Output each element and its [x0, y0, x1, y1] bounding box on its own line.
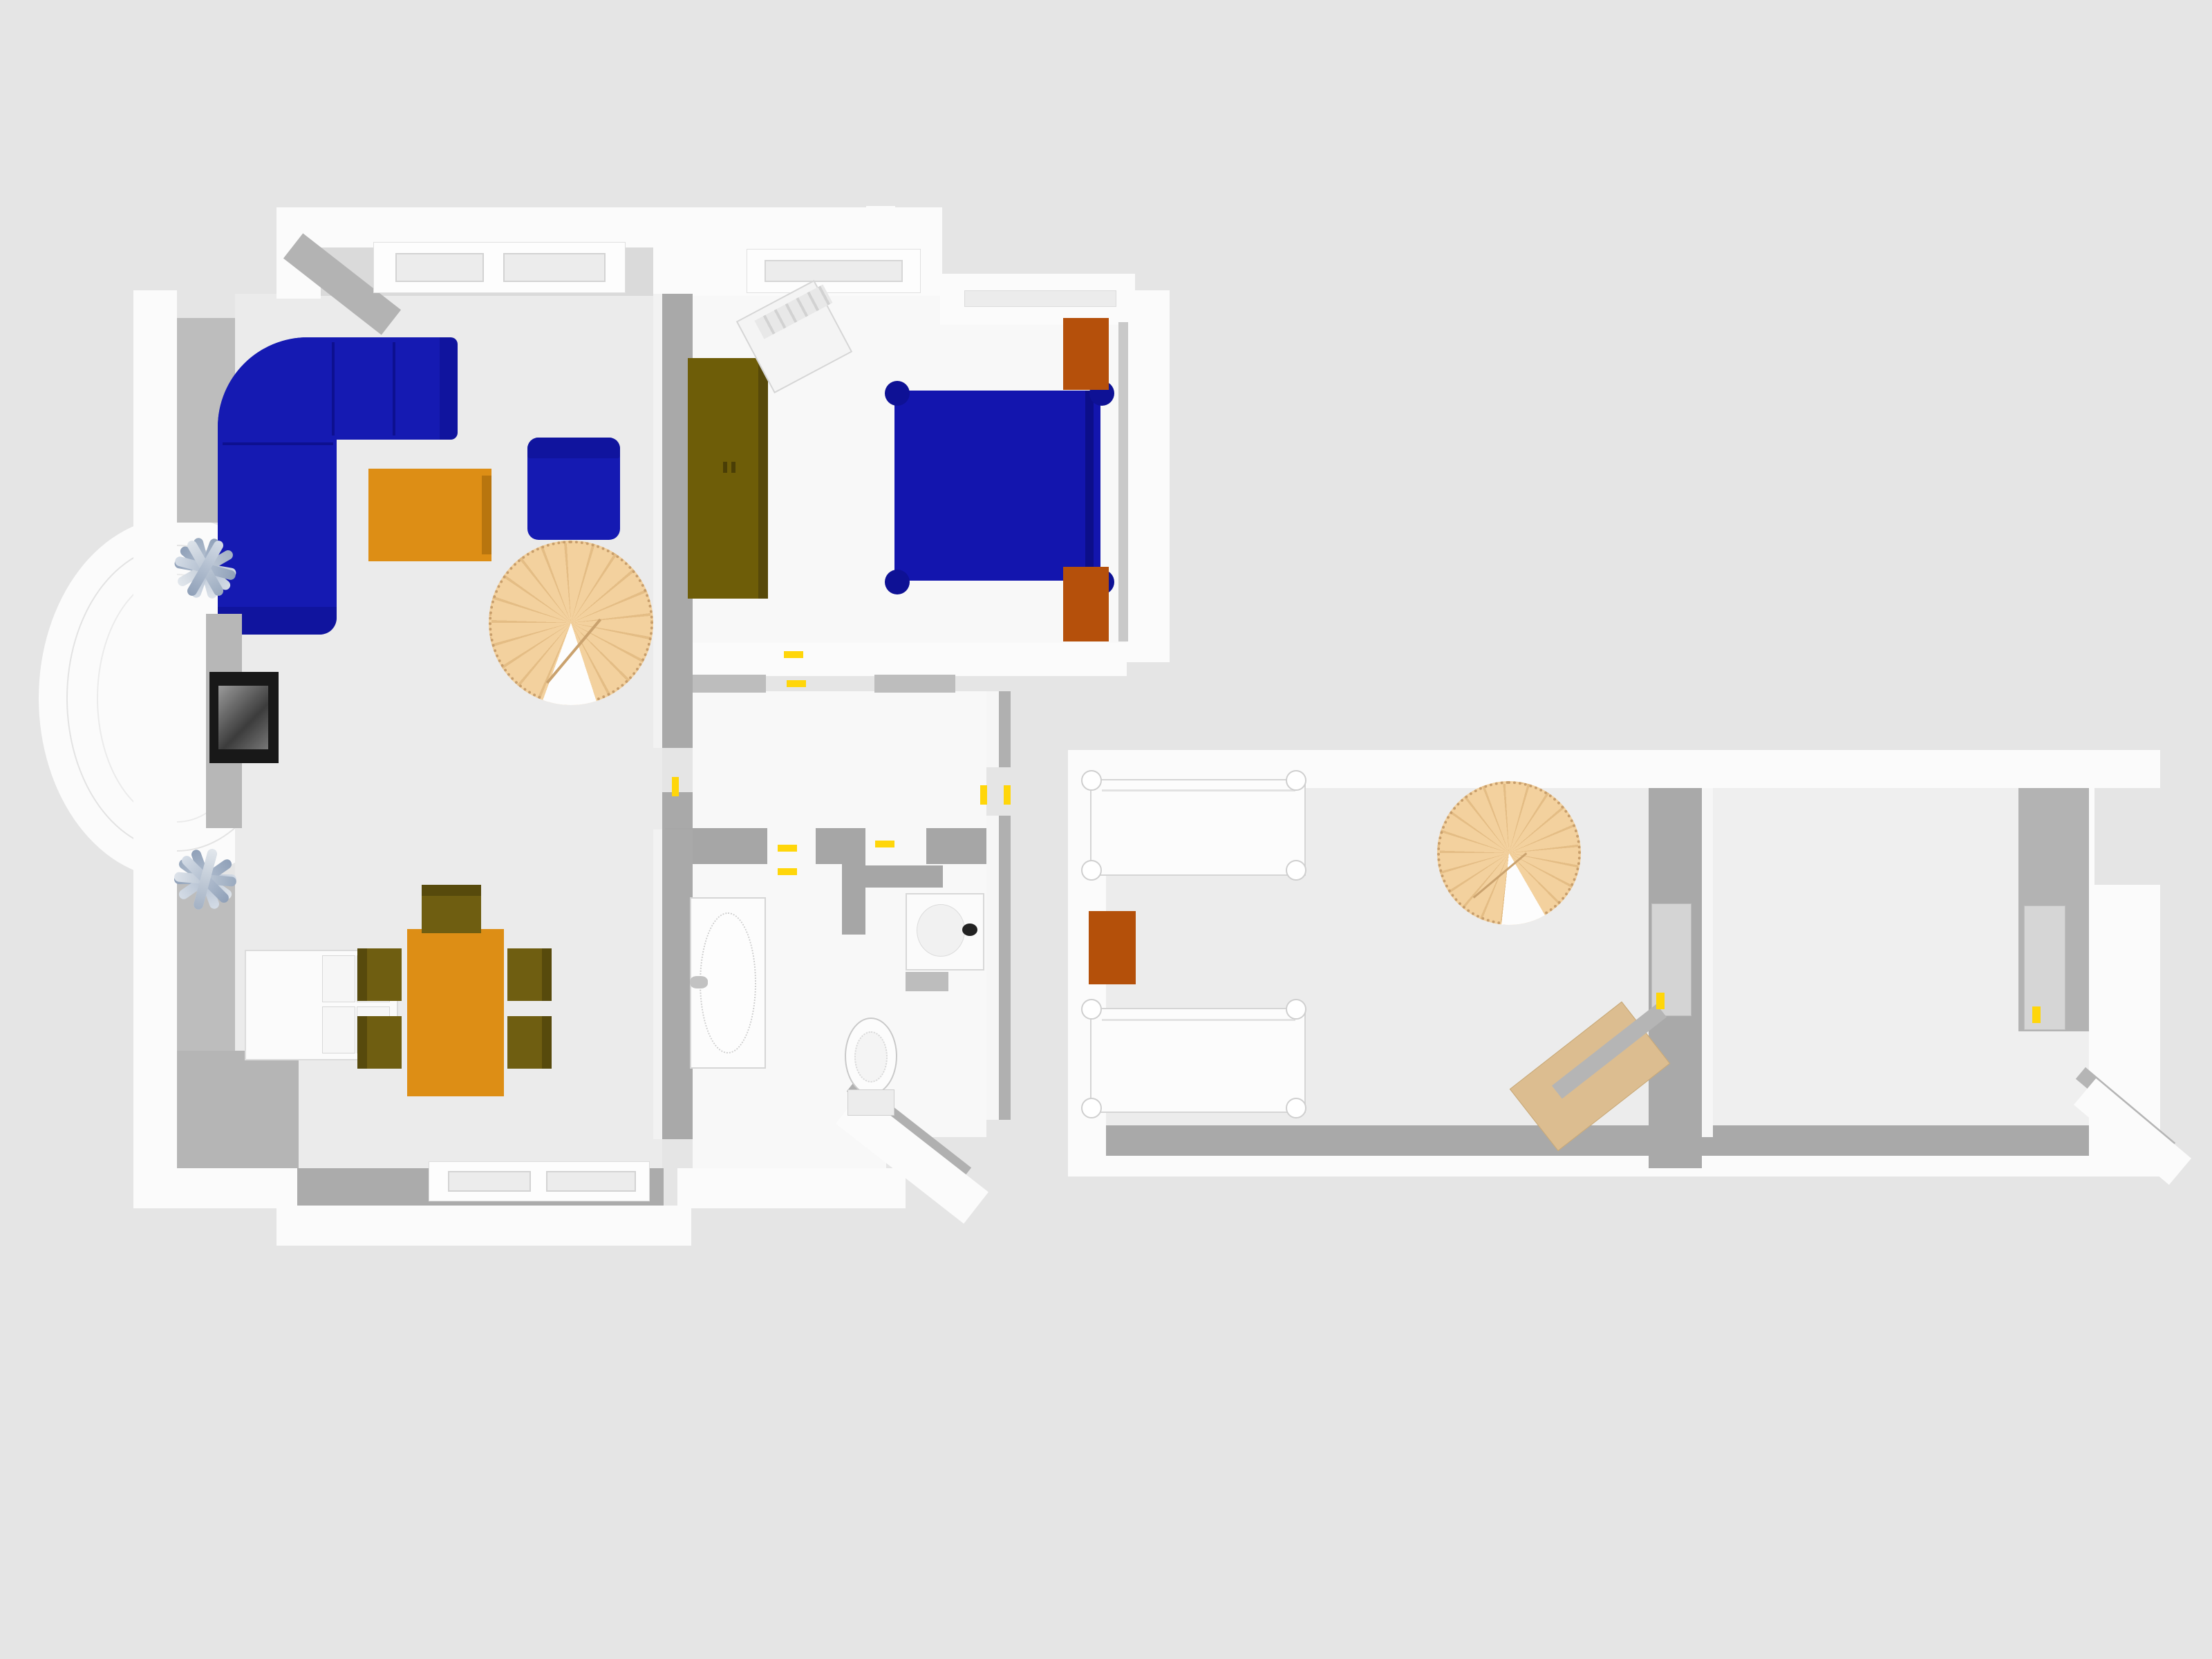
sink-basin: [917, 904, 965, 957]
living-window-pane-1: [395, 253, 484, 282]
sofa-vertical-section[interactable]: [218, 337, 337, 635]
sink-partition-horizontal: [864, 865, 943, 888]
left-wall-white: [133, 290, 177, 1168]
upper-dresser[interactable]: [1089, 911, 1136, 984]
floor-hallway: [693, 691, 986, 829]
door-handle-hall-exterior-a[interactable]: [980, 785, 987, 805]
sink-step: [906, 972, 948, 991]
living-hall-divider-stub: [662, 792, 693, 831]
upper-alcove-door[interactable]: [2024, 906, 2065, 1030]
upper-bed-2-post-4: [1286, 1098, 1306, 1118]
door-handle-hall-bath-b[interactable]: [778, 868, 797, 875]
upper-bed-1-post-2: [1286, 770, 1306, 791]
door-handle-living-hall[interactable]: [672, 777, 679, 796]
door-handle-hall-closet[interactable]: [875, 841, 894, 847]
door-handle-bedroom-a[interactable]: [784, 651, 803, 658]
sofa-seam-2: [393, 342, 395, 435]
coffee-table-edge: [482, 476, 491, 554]
dining-window-pane-1: [448, 1171, 531, 1192]
upper-bed-2-post-3: [1081, 1098, 1102, 1118]
corner-grey-block: [177, 1051, 299, 1168]
sofa-seam-3: [223, 442, 333, 445]
bath-left-wall-grey: [662, 829, 693, 1139]
upper-bed-1-post-4: [1286, 860, 1306, 881]
wardrobe-body[interactable]: [688, 358, 767, 599]
upper-bed-2[interactable]: [1090, 1008, 1306, 1113]
upper-bed-2-line: [1102, 1019, 1295, 1021]
door-handle-upper-divider[interactable]: [1656, 993, 1665, 1009]
toilet-tank: [847, 1089, 894, 1116]
bedroom-right-wall: [1127, 290, 1170, 662]
corner-white-band: [133, 1168, 299, 1208]
dining-chair-east-2-back: [542, 1016, 552, 1069]
floorplan-stage: [0, 0, 2212, 1659]
dining-chair-west-1-back: [357, 948, 367, 1001]
upper-bed-1-post-3: [1081, 860, 1102, 881]
living-window-pane-2: [503, 253, 606, 282]
dining-chair-north-back: [422, 885, 481, 896]
hall-right-wall-grey-2: [999, 816, 1011, 1120]
dining-cabinet-door-1: [322, 955, 355, 1002]
wardrobe-handle-1: [723, 462, 727, 473]
left-wall-grey-bottom: [177, 878, 235, 1052]
double-bed-post-1: [885, 381, 910, 406]
upper-building-bottom-wall-grey: [1106, 1125, 2089, 1156]
door-handle-hall-exterior-b[interactable]: [1004, 785, 1011, 805]
spiral-staircase-upper-notch: [1437, 781, 1581, 925]
bedroom-window-pane: [765, 260, 903, 282]
bedroom-right-wall-inner: [1118, 322, 1128, 641]
nightstand-north[interactable]: [1063, 318, 1109, 390]
nightstand-south[interactable]: [1063, 567, 1109, 641]
bathtub-basin: [700, 912, 756, 1053]
armchair-back: [527, 438, 620, 458]
upper-bed-1-post-1: [1081, 770, 1102, 791]
tv-screen: [218, 686, 268, 749]
floor-upper-empty-room: [1713, 788, 2020, 1137]
toilet-seat: [854, 1031, 888, 1082]
upper-bed-2-post-2: [1286, 999, 1306, 1020]
hall-right-wall-white-1: [986, 691, 1000, 767]
coffee-table[interactable]: [368, 469, 491, 561]
upper-divider-wall-white: [1702, 788, 1713, 1137]
upper-building-bottom-wall-white: [1068, 1154, 2160, 1177]
dining-cabinet-door-3: [322, 1006, 355, 1053]
spiral-staircase-living-notch: [489, 541, 653, 705]
wardrobe-handle-2: [731, 462, 735, 473]
sink-faucet: [962, 924, 977, 936]
double-bed-headboard: [1085, 391, 1094, 581]
door-handle-bedroom-b[interactable]: [787, 680, 806, 687]
bathtub-tap: [690, 976, 708, 988]
double-bed-post-3: [885, 570, 910, 594]
dining-bottom-wall-white: [276, 1206, 691, 1246]
dining-window-pane-2: [546, 1171, 636, 1192]
dining-chair-west-2-back: [357, 1016, 367, 1069]
door-handle-hall-bath-a[interactable]: [778, 845, 797, 852]
upper-bed-1-line: [1102, 789, 1295, 791]
bedroom-bottom-wall-grey-1: [693, 675, 766, 693]
upper-building-notch: [2094, 788, 2160, 885]
upper-bed-1[interactable]: [1090, 779, 1306, 876]
floor-upper-empty-room-ext: [2018, 1030, 2089, 1137]
bath-left-wall-white: [653, 829, 663, 1139]
upper-bed-2-post-1: [1081, 999, 1102, 1020]
sofa-seam-1: [332, 342, 335, 435]
bedroom-bottom-wall-grey-2: [874, 675, 955, 693]
bedroom-bottom-wall-white: [693, 643, 1127, 676]
hall-bath-wall-3: [926, 828, 986, 864]
bath-bottom-wall-white: [677, 1168, 906, 1208]
hall-right-wall-grey-1: [999, 691, 1011, 767]
hall-right-wall-white-2: [986, 816, 1000, 1120]
double-bed[interactable]: [894, 391, 1100, 581]
sofa-armrest-right: [440, 337, 458, 440]
bedroom-window-sill-right: [964, 290, 1116, 307]
sink-partition-vertical: [842, 829, 865, 935]
door-handle-upper-alcove[interactable]: [2032, 1006, 2041, 1023]
wardrobe-side: [758, 358, 768, 599]
dining-chair-east-1-back: [542, 948, 552, 1001]
dining-table[interactable]: [407, 929, 504, 1096]
